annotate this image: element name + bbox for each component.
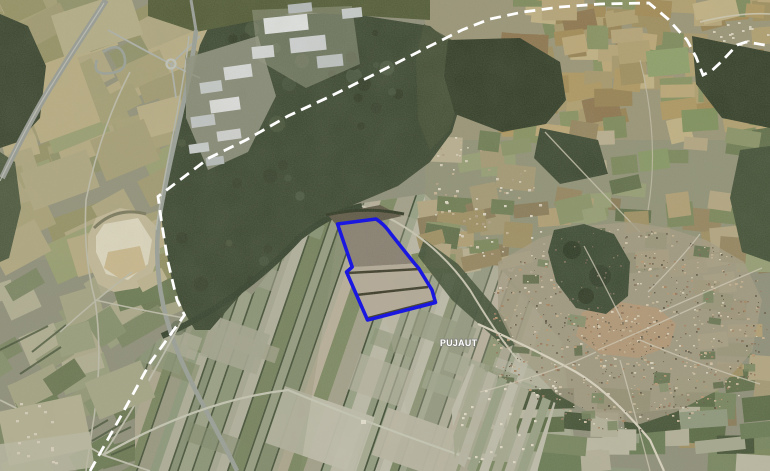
svg-text:PUJAUT: PUJAUT [440, 338, 478, 348]
